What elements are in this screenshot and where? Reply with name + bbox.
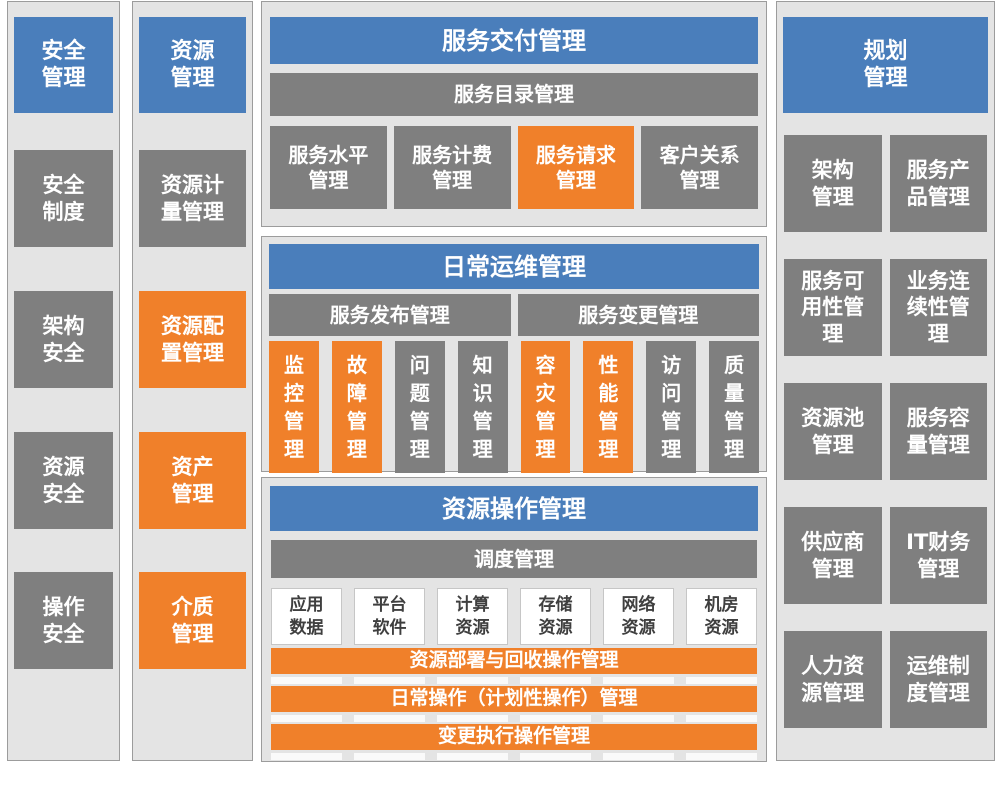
resource-item-metering: 资源计 量管理 — [139, 150, 246, 247]
network-resource-box: 网络 资源 — [603, 588, 674, 645]
security-title: 安全 管理 — [14, 17, 113, 113]
resource-type-row: 应用 数据 平台 软件 计算 资源 存储 资源 网络 资源 机房 资源 — [271, 588, 757, 645]
monitoring-box: 监 控 管 理 — [269, 341, 319, 473]
separator-row — [271, 677, 757, 684]
separator-row — [271, 715, 757, 722]
daily-ops-panel: 日常运维管理 服务发布管理 服务变更管理 监 控 管 理 故 障 管 理 问 题… — [261, 236, 767, 472]
resource-item-configuration: 资源配 置管理 — [139, 291, 246, 388]
supplier-mgmt-box: 供应商 管理 — [784, 507, 882, 604]
change-mgmt-bar: 服务变更管理 — [518, 294, 760, 336]
quality-box: 质 量 管 理 — [709, 341, 759, 473]
incident-box: 故 障 管 理 — [332, 341, 382, 473]
architecture-mgmt-box: 架构 管理 — [784, 135, 882, 232]
platform-software-box: 平台 软件 — [354, 588, 425, 645]
resource-item-asset: 资产 管理 — [139, 432, 246, 529]
resource-column: 资源 管理 资源计 量管理 资源配 置管理 资产 管理 介质 管理 — [132, 1, 253, 761]
daily-ops-row: 监 控 管 理 故 障 管 理 问 题 管 理 知 识 管 理 容 灾 管 理 … — [269, 341, 759, 473]
app-data-box: 应用 数据 — [271, 588, 342, 645]
security-item-architecture: 架构 安全 — [14, 291, 113, 388]
service-capacity-box: 服务容 量管理 — [890, 383, 988, 480]
service-availability-box: 服务可 用性管 理 — [784, 259, 882, 356]
deploy-recycle-bar: 资源部署与回收操作管理 — [271, 648, 757, 674]
change-execution-bar: 变更执行操作管理 — [271, 724, 757, 750]
resource-item-media: 介质 管理 — [139, 572, 246, 669]
resource-title: 资源 管理 — [139, 17, 246, 113]
service-billing-box: 服务计费 管理 — [394, 126, 511, 209]
service-catalog-bar: 服务目录管理 — [270, 73, 758, 116]
resource-ops-title: 资源操作管理 — [270, 486, 758, 531]
business-continuity-box: 业务连 续性管 理 — [890, 259, 988, 356]
security-item-institution: 安全 制度 — [14, 150, 113, 247]
it-finance-box: IT财务 管理 — [890, 507, 988, 604]
planning-title: 规划 管理 — [783, 17, 988, 113]
security-item-operation: 操作 安全 — [14, 572, 113, 669]
knowledge-box: 知 识 管 理 — [458, 341, 508, 473]
performance-box: 性 能 管 理 — [583, 341, 633, 473]
planning-grid: 架构 管理 服务产 品管理 服务可 用性管 理 业务连 续性管 理 资源池 管理… — [784, 135, 987, 728]
planning-column: 规划 管理 架构 管理 服务产 品管理 服务可 用性管 理 业务连 续性管 理 … — [776, 1, 995, 761]
schedule-bar: 调度管理 — [271, 540, 757, 578]
service-level-box: 服务水平 管理 — [270, 126, 387, 209]
service-request-box: 服务请求 管理 — [518, 126, 635, 209]
problem-box: 问 题 管 理 — [395, 341, 445, 473]
disaster-recovery-box: 容 灾 管 理 — [521, 341, 571, 473]
service-delivery-panel: 服务交付管理 服务目录管理 服务水平 管理 服务计费 管理 服务请求 管理 客户… — [261, 1, 767, 227]
resource-pool-box: 资源池 管理 — [784, 383, 882, 480]
compute-resource-box: 计算 资源 — [437, 588, 508, 645]
customer-relation-box: 客户关系 管理 — [641, 126, 758, 209]
security-item-resource: 资源 安全 — [14, 432, 113, 529]
service-delivery-title: 服务交付管理 — [270, 17, 758, 64]
resource-ops-panel: 资源操作管理 调度管理 应用 数据 平台 软件 计算 资源 存储 资源 网络 资… — [261, 477, 767, 762]
separator-row — [271, 753, 757, 760]
hr-mgmt-box: 人力资 源管理 — [784, 631, 882, 728]
service-product-box: 服务产 品管理 — [890, 135, 988, 232]
security-column: 安全 管理 安全 制度 架构 安全 资源 安全 操作 安全 — [7, 1, 120, 761]
storage-resource-box: 存储 资源 — [520, 588, 591, 645]
release-mgmt-bar: 服务发布管理 — [269, 294, 511, 336]
daily-ops-bars: 服务发布管理 服务变更管理 — [269, 294, 759, 336]
service-delivery-row: 服务水平 管理 服务计费 管理 服务请求 管理 客户关系 管理 — [270, 126, 758, 209]
daily-ops-title: 日常运维管理 — [269, 244, 759, 289]
ops-institution-box: 运维制 度管理 — [890, 631, 988, 728]
access-box: 访 问 管 理 — [646, 341, 696, 473]
daily-planned-ops-bar: 日常操作（计划性操作）管理 — [271, 686, 757, 712]
datacenter-resource-box: 机房 资源 — [686, 588, 757, 645]
